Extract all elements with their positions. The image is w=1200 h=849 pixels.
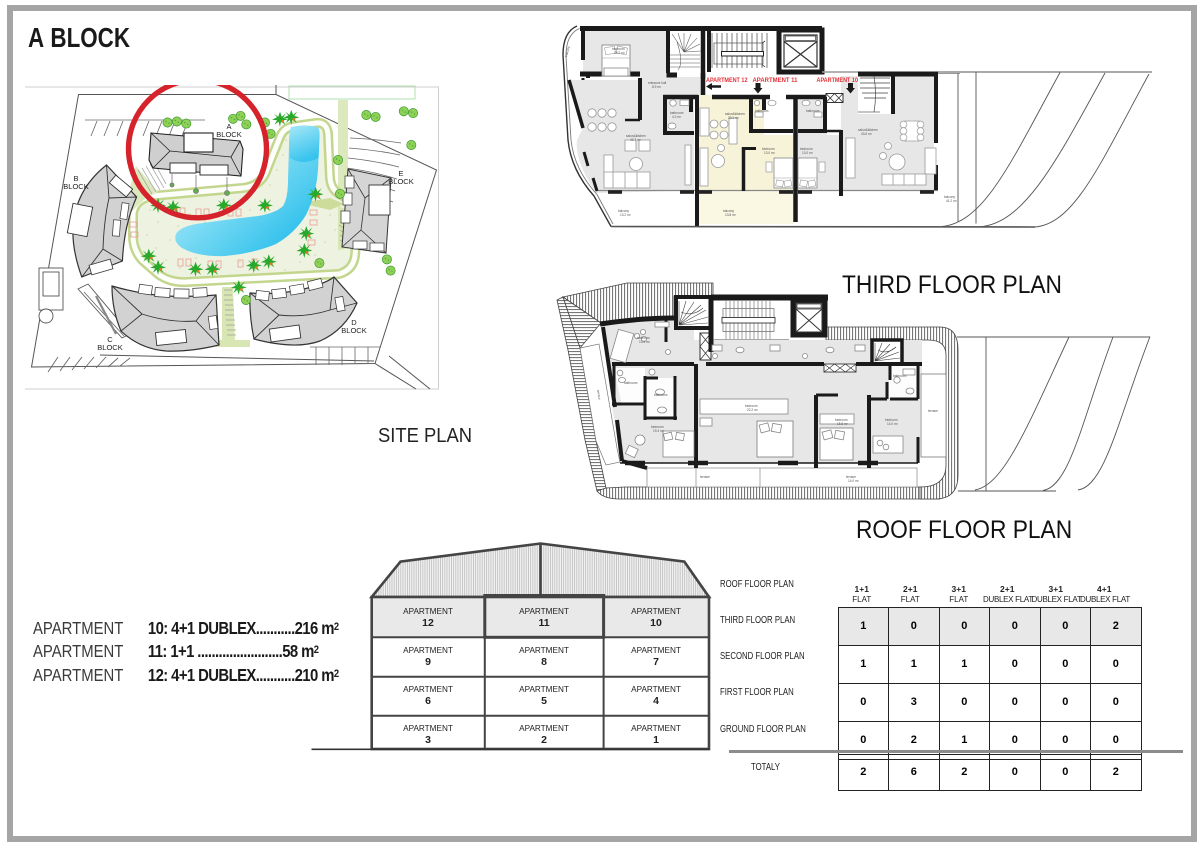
svg-text:8: 8: [541, 656, 547, 668]
svg-text:4: 4: [653, 695, 659, 707]
svg-text:APARTMENT: APARTMENT: [631, 646, 681, 655]
svg-text:3: 3: [425, 734, 431, 746]
svg-text:APARTMENT: APARTMENT: [519, 607, 569, 616]
svg-text:12: 12: [422, 617, 434, 629]
svg-text:APARTMENT: APARTMENT: [519, 724, 569, 733]
svg-text:terrace: terrace: [928, 409, 938, 413]
svg-text:BLOCK: BLOCK: [388, 177, 413, 186]
svg-text:11: 11: [538, 617, 549, 629]
svg-text:APARTMENT 12: APARTMENT 12: [706, 78, 748, 84]
svg-text:APARTMENT: APARTMENT: [519, 685, 569, 694]
svg-text:13.0 m²: 13.0 m²: [764, 151, 775, 155]
svg-text:balcony: balcony: [564, 45, 571, 57]
svg-text:41.2 m²: 41.2 m²: [946, 199, 957, 203]
svg-text:42.7 m²: 42.7 m²: [630, 138, 641, 142]
svg-text:bathroom: bathroom: [893, 374, 907, 378]
svg-text:10: 10: [650, 617, 662, 629]
svg-text:33.1 m²: 33.1 m²: [728, 116, 739, 120]
svg-text:BLOCK: BLOCK: [63, 182, 88, 191]
svg-text:bathroom: bathroom: [755, 109, 769, 113]
svg-text:15.8 m²: 15.8 m²: [837, 422, 848, 426]
svg-text:14.0 m²: 14.0 m²: [848, 479, 859, 483]
svg-text:APARTMENT: APARTMENT: [631, 685, 681, 694]
svg-text:22.2 m²: 22.2 m²: [747, 408, 758, 412]
svg-text:APARTMENT: APARTMENT: [519, 646, 569, 655]
svg-text:4.2 m²: 4.2 m²: [672, 115, 681, 119]
svg-text:bathroom: bathroom: [624, 381, 638, 385]
svg-text:APARTMENT: APARTMENT: [403, 724, 453, 733]
svg-text:terrace: terrace: [700, 475, 710, 479]
svg-text:43.6 m²: 43.6 m²: [861, 132, 872, 136]
svg-text:13.0 m²: 13.0 m²: [802, 151, 813, 155]
svg-text:APARTMENT: APARTMENT: [631, 724, 681, 733]
svg-text:BLOCK: BLOCK: [97, 343, 122, 352]
svg-text:BLOCK: BLOCK: [216, 130, 241, 139]
svg-text:APARTMENT: APARTMENT: [403, 607, 453, 616]
svg-text:BLOCK: BLOCK: [341, 326, 366, 335]
svg-text:APARTMENT: APARTMENT: [403, 685, 453, 694]
svg-text:14.0 m²: 14.0 m²: [887, 422, 898, 426]
svg-text:bathroom: bathroom: [806, 109, 820, 113]
svg-text:APARTMENT: APARTMENT: [631, 607, 681, 616]
svg-text:1: 1: [653, 734, 659, 746]
svg-text:8.9 m²: 8.9 m²: [652, 85, 661, 89]
svg-text:APARTMENT: APARTMENT: [403, 646, 453, 655]
svg-text:9: 9: [425, 656, 431, 668]
svg-text:bathroom: bathroom: [654, 393, 668, 397]
svg-text:13.2 m²: 13.2 m²: [620, 213, 631, 217]
svg-text:13.8 m²: 13.8 m²: [725, 213, 736, 217]
svg-text:7: 7: [653, 656, 659, 668]
svg-text:13.3 m²: 13.3 m²: [639, 340, 650, 344]
svg-text:14.2 m²: 14.2 m²: [614, 51, 625, 55]
svg-text:6: 6: [425, 695, 431, 707]
svg-text:2: 2: [541, 734, 547, 746]
svg-text:5: 5: [541, 695, 547, 707]
svg-text:19.4 m²: 19.4 m²: [653, 429, 664, 433]
